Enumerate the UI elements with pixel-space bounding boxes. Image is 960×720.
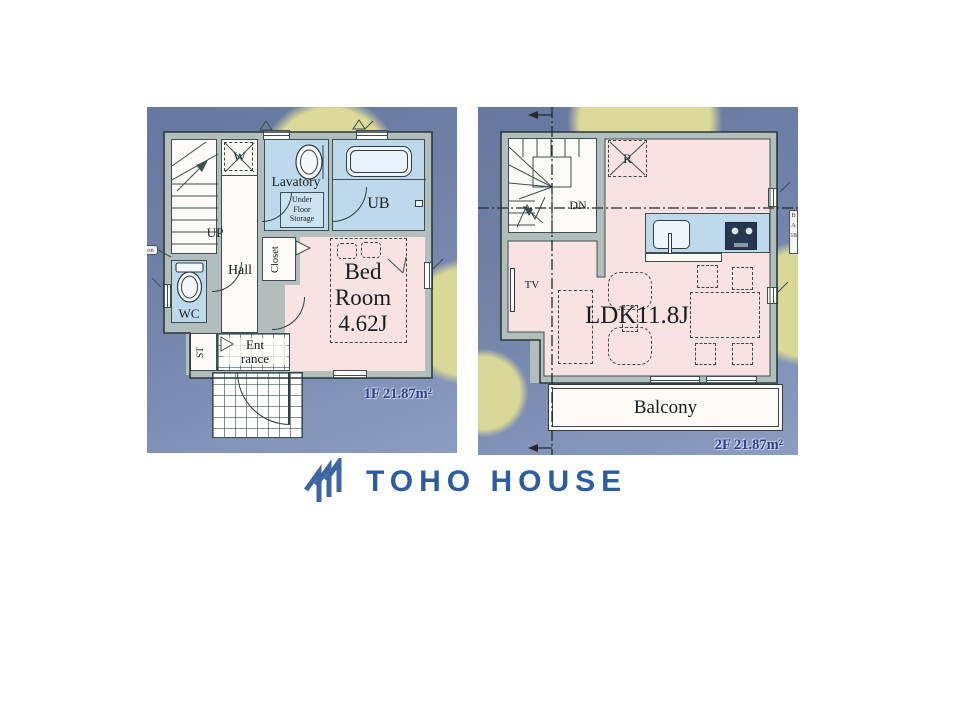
- chair-4: [732, 343, 753, 365]
- up-label: UP: [197, 226, 233, 239]
- area-label-1f: 1F 21.87m²: [287, 387, 432, 402]
- window-top-1: [263, 130, 290, 140]
- ub-label: UB: [332, 196, 425, 212]
- kitchen-counter: [645, 213, 770, 253]
- st-label: ST: [197, 339, 207, 365]
- bedroom-line2: Room: [293, 285, 433, 311]
- hall-label: Hall: [217, 264, 263, 278]
- kitchen-faucet-icon: [668, 233, 672, 254]
- toho-house-logo-icon: [304, 458, 358, 510]
- bedroom-label: Bed Room 4.62J: [293, 259, 433, 338]
- tv-icon: [510, 268, 515, 312]
- ldk-label: LDK11.8J: [537, 303, 737, 328]
- stairs-2f: [508, 138, 597, 233]
- window-wc-west: [163, 284, 171, 308]
- chair-3: [695, 343, 716, 365]
- stairs-2f-treads: [509, 139, 598, 234]
- kitchen-counter-front: [645, 253, 722, 262]
- edge-note-2f: BA18: [789, 210, 798, 254]
- balcony-label: Balcony: [548, 398, 783, 417]
- w-label: W: [221, 150, 258, 163]
- window-ldk-south-2: [706, 376, 757, 384]
- ub-divider: [333, 179, 426, 180]
- bedroom-size: 4.62J: [293, 311, 433, 337]
- floorplan-2f-panel: R DN TV LDK11.8J Balcony 2F 21.87m² BA18: [478, 107, 798, 455]
- entrance-label: Ent rance: [223, 338, 287, 365]
- closet-label: Closet: [271, 241, 282, 278]
- pillow-2: [361, 242, 381, 258]
- floorplan-1f-panel: Under Floor Storage: [147, 107, 457, 453]
- window-ldk-south-1: [650, 376, 700, 384]
- window-ldk-east-2: [767, 287, 778, 304]
- logo: TOHO HOUSE: [300, 452, 700, 514]
- storage-line3: Storage: [281, 214, 323, 224]
- window-top-2: [356, 130, 388, 140]
- wc-label: WC: [171, 307, 207, 320]
- dn-label: DN: [564, 199, 592, 211]
- toilet-icon: [172, 261, 208, 307]
- window-bedroom-south: [333, 370, 367, 379]
- chair-2: [732, 267, 753, 290]
- pillow-1: [337, 243, 357, 259]
- edge-note-1f: on: [147, 245, 158, 255]
- stove-icon: [725, 222, 757, 250]
- entrance-line2: rance: [223, 352, 287, 366]
- area-label-2f: 2F 21.87m²: [638, 438, 783, 453]
- sofa-lobe-2: [608, 327, 652, 365]
- bathtub-icon: [346, 146, 412, 177]
- entrance-line1: Ent: [223, 338, 287, 352]
- lavatory-label: Lavatory: [262, 175, 330, 189]
- bedroom-line1: Bed: [293, 259, 433, 285]
- window-ldk-east-1: [768, 188, 778, 207]
- floorplan-sheet: Under Floor Storage: [0, 0, 960, 720]
- logo-text: TOHO HOUSE: [366, 465, 627, 499]
- chair-1: [697, 265, 718, 288]
- refrigerator-label: R: [608, 152, 647, 165]
- tv-label: TV: [521, 280, 543, 291]
